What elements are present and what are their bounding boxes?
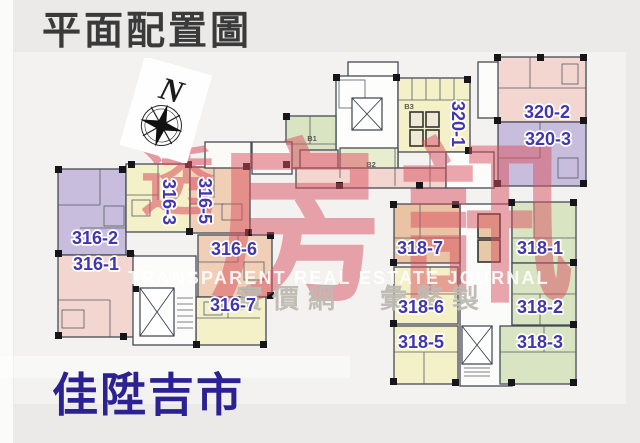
floor-plan-page: B1 B3 B2 透 房訊 TRANSPARENT REAL ESTATE JO… bbox=[0, 0, 640, 443]
unit-label-318-2: 318-2 bbox=[517, 297, 563, 317]
unit-label-316-7: 316-7 bbox=[210, 295, 256, 315]
page-title: 平面配置圖 bbox=[42, 12, 252, 51]
unit-label-316-2: 316-2 bbox=[72, 228, 118, 248]
unit-label-318-5: 318-5 bbox=[398, 332, 444, 352]
unit-label-316-3: 316-3 bbox=[159, 179, 179, 225]
unit-label-318-7: 318-7 bbox=[397, 238, 443, 258]
project-name: 佳陞吉市 bbox=[52, 372, 244, 418]
north-compass: N bbox=[108, 58, 228, 163]
unit-label-320-3: 320-3 bbox=[525, 129, 571, 149]
unit-label-318-3: 318-3 bbox=[517, 332, 563, 352]
unit-label-318-6: 318-6 bbox=[398, 297, 444, 317]
unit-label-320-2: 320-2 bbox=[524, 102, 570, 122]
unit-label-316-6: 316-6 bbox=[211, 239, 257, 259]
unit-label-318-1: 318-1 bbox=[517, 238, 563, 258]
unit-label-320-1: 320-1 bbox=[448, 101, 468, 147]
unit-label-316-5: 316-5 bbox=[195, 178, 215, 224]
unit-label-316-1: 316-1 bbox=[73, 254, 119, 274]
